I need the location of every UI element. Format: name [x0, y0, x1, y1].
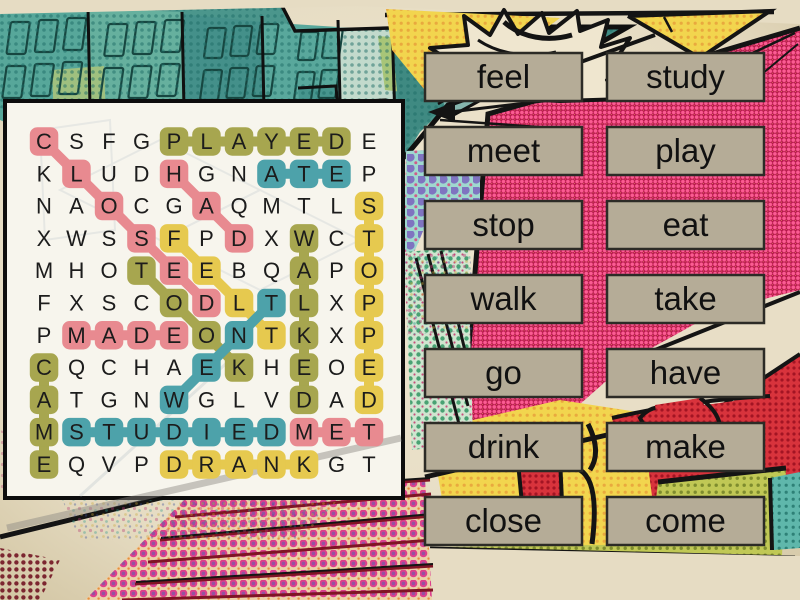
svg-text:drink: drink [468, 428, 540, 465]
svg-text:D: D [199, 291, 215, 316]
svg-text:A: A [264, 161, 279, 186]
svg-text:S: S [102, 291, 117, 316]
svg-text:E: E [362, 355, 377, 380]
svg-text:K: K [232, 355, 247, 380]
svg-text:G: G [100, 387, 117, 412]
svg-text:O: O [328, 355, 345, 380]
svg-text:stop: stop [472, 206, 534, 243]
svg-text:E: E [167, 258, 182, 283]
svg-text:Q: Q [263, 258, 280, 283]
svg-text:D: D [134, 161, 150, 186]
svg-text:take: take [654, 280, 716, 317]
svg-text:study: study [646, 58, 725, 95]
svg-text:E: E [297, 355, 312, 380]
svg-text:C: C [36, 129, 52, 154]
svg-text:D: D [166, 420, 182, 445]
svg-text:P: P [37, 323, 52, 348]
svg-text:T: T [362, 226, 375, 251]
svg-text:K: K [297, 323, 312, 348]
svg-text:A: A [232, 129, 247, 154]
svg-text:L: L [200, 129, 212, 154]
svg-text:P: P [362, 323, 377, 348]
svg-text:T: T [102, 420, 115, 445]
svg-text:I: I [203, 420, 209, 445]
svg-text:G: G [198, 387, 215, 412]
svg-text:T: T [362, 452, 375, 477]
svg-text:F: F [102, 129, 115, 154]
svg-text:L: L [233, 387, 245, 412]
svg-text:C: C [36, 355, 52, 380]
svg-text:E: E [232, 420, 247, 445]
svg-text:G: G [198, 161, 215, 186]
svg-text:feel: feel [477, 58, 530, 95]
svg-text:W: W [164, 387, 185, 412]
svg-text:N: N [231, 323, 247, 348]
svg-text:G: G [133, 129, 150, 154]
svg-text:H: H [166, 161, 182, 186]
svg-text:T: T [297, 194, 310, 219]
svg-text:T: T [265, 291, 278, 316]
svg-text:U: U [134, 420, 150, 445]
svg-text:D: D [361, 387, 377, 412]
svg-text:O: O [165, 291, 182, 316]
svg-text:go: go [485, 354, 522, 391]
svg-text:L: L [330, 194, 342, 219]
svg-text:E: E [167, 323, 182, 348]
svg-text:W: W [294, 226, 315, 251]
svg-text:V: V [102, 452, 117, 477]
svg-text:E: E [199, 355, 214, 380]
svg-text:eat: eat [663, 206, 709, 243]
svg-text:D: D [134, 323, 150, 348]
svg-text:O: O [198, 323, 215, 348]
svg-text:Q: Q [68, 355, 85, 380]
svg-text:C: C [134, 194, 150, 219]
svg-text:P: P [362, 161, 377, 186]
svg-text:D: D [231, 226, 247, 251]
svg-text:M: M [262, 194, 280, 219]
svg-text:make: make [645, 428, 726, 465]
svg-text:M: M [35, 258, 53, 283]
svg-text:D: D [296, 387, 312, 412]
svg-text:P: P [329, 258, 344, 283]
svg-text:N: N [231, 161, 247, 186]
svg-text:E: E [329, 420, 344, 445]
svg-text:S: S [134, 226, 149, 251]
svg-text:P: P [199, 226, 214, 251]
svg-text:Q: Q [68, 452, 85, 477]
svg-text:X: X [264, 226, 279, 251]
svg-text:play: play [655, 132, 716, 169]
svg-text:D: D [329, 129, 345, 154]
svg-text:K: K [297, 452, 312, 477]
svg-text:C: C [134, 291, 150, 316]
svg-text:L: L [233, 291, 245, 316]
svg-text:come: come [645, 502, 726, 539]
svg-text:L: L [298, 291, 310, 316]
svg-text:D: D [264, 420, 280, 445]
svg-text:E: E [362, 129, 377, 154]
svg-text:X: X [69, 291, 84, 316]
svg-text:C: C [329, 226, 345, 251]
svg-text:N: N [134, 387, 150, 412]
svg-text:S: S [69, 420, 84, 445]
svg-text:T: T [362, 420, 375, 445]
svg-text:A: A [199, 194, 214, 219]
svg-text:S: S [102, 226, 117, 251]
svg-text:A: A [37, 387, 52, 412]
svg-text:T: T [135, 258, 148, 283]
svg-text:V: V [264, 387, 279, 412]
svg-text:T: T [297, 161, 310, 186]
svg-text:N: N [264, 452, 280, 477]
svg-text:C: C [101, 355, 117, 380]
svg-text:meet: meet [467, 132, 540, 169]
svg-text:P: P [134, 452, 149, 477]
svg-text:O: O [100, 194, 117, 219]
svg-text:A: A [232, 452, 247, 477]
svg-text:F: F [167, 226, 180, 251]
svg-text:M: M [295, 420, 313, 445]
svg-text:K: K [37, 161, 52, 186]
svg-text:A: A [167, 355, 182, 380]
svg-text:X: X [37, 226, 52, 251]
svg-text:H: H [69, 258, 85, 283]
svg-text:Q: Q [230, 194, 247, 219]
svg-text:walk: walk [469, 280, 537, 317]
svg-text:X: X [329, 323, 344, 348]
svg-text:O: O [360, 258, 377, 283]
svg-text:N: N [36, 194, 52, 219]
svg-text:B: B [232, 258, 247, 283]
svg-text:S: S [69, 129, 84, 154]
svg-text:M: M [67, 323, 85, 348]
svg-text:P: P [362, 291, 377, 316]
svg-text:A: A [329, 387, 344, 412]
svg-text:S: S [362, 194, 377, 219]
svg-text:R: R [199, 452, 215, 477]
svg-text:U: U [101, 161, 117, 186]
svg-text:E: E [297, 129, 312, 154]
svg-text:H: H [264, 355, 280, 380]
svg-text:Y: Y [264, 129, 279, 154]
svg-text:E: E [329, 161, 344, 186]
svg-text:X: X [329, 291, 344, 316]
svg-text:T: T [265, 323, 278, 348]
svg-text:H: H [134, 355, 150, 380]
svg-text:E: E [199, 258, 214, 283]
svg-text:have: have [650, 354, 722, 391]
svg-text:L: L [70, 161, 82, 186]
svg-text:P: P [167, 129, 182, 154]
svg-text:D: D [166, 452, 182, 477]
svg-text:M: M [35, 420, 53, 445]
svg-text:G: G [165, 194, 182, 219]
svg-text:O: O [100, 258, 117, 283]
svg-text:A: A [69, 194, 84, 219]
svg-text:W: W [66, 226, 87, 251]
svg-text:G: G [328, 452, 345, 477]
svg-text:T: T [70, 387, 83, 412]
svg-text:E: E [37, 452, 52, 477]
svg-text:A: A [297, 258, 312, 283]
svg-text:F: F [37, 291, 50, 316]
svg-text:close: close [465, 502, 542, 539]
svg-text:A: A [102, 323, 117, 348]
